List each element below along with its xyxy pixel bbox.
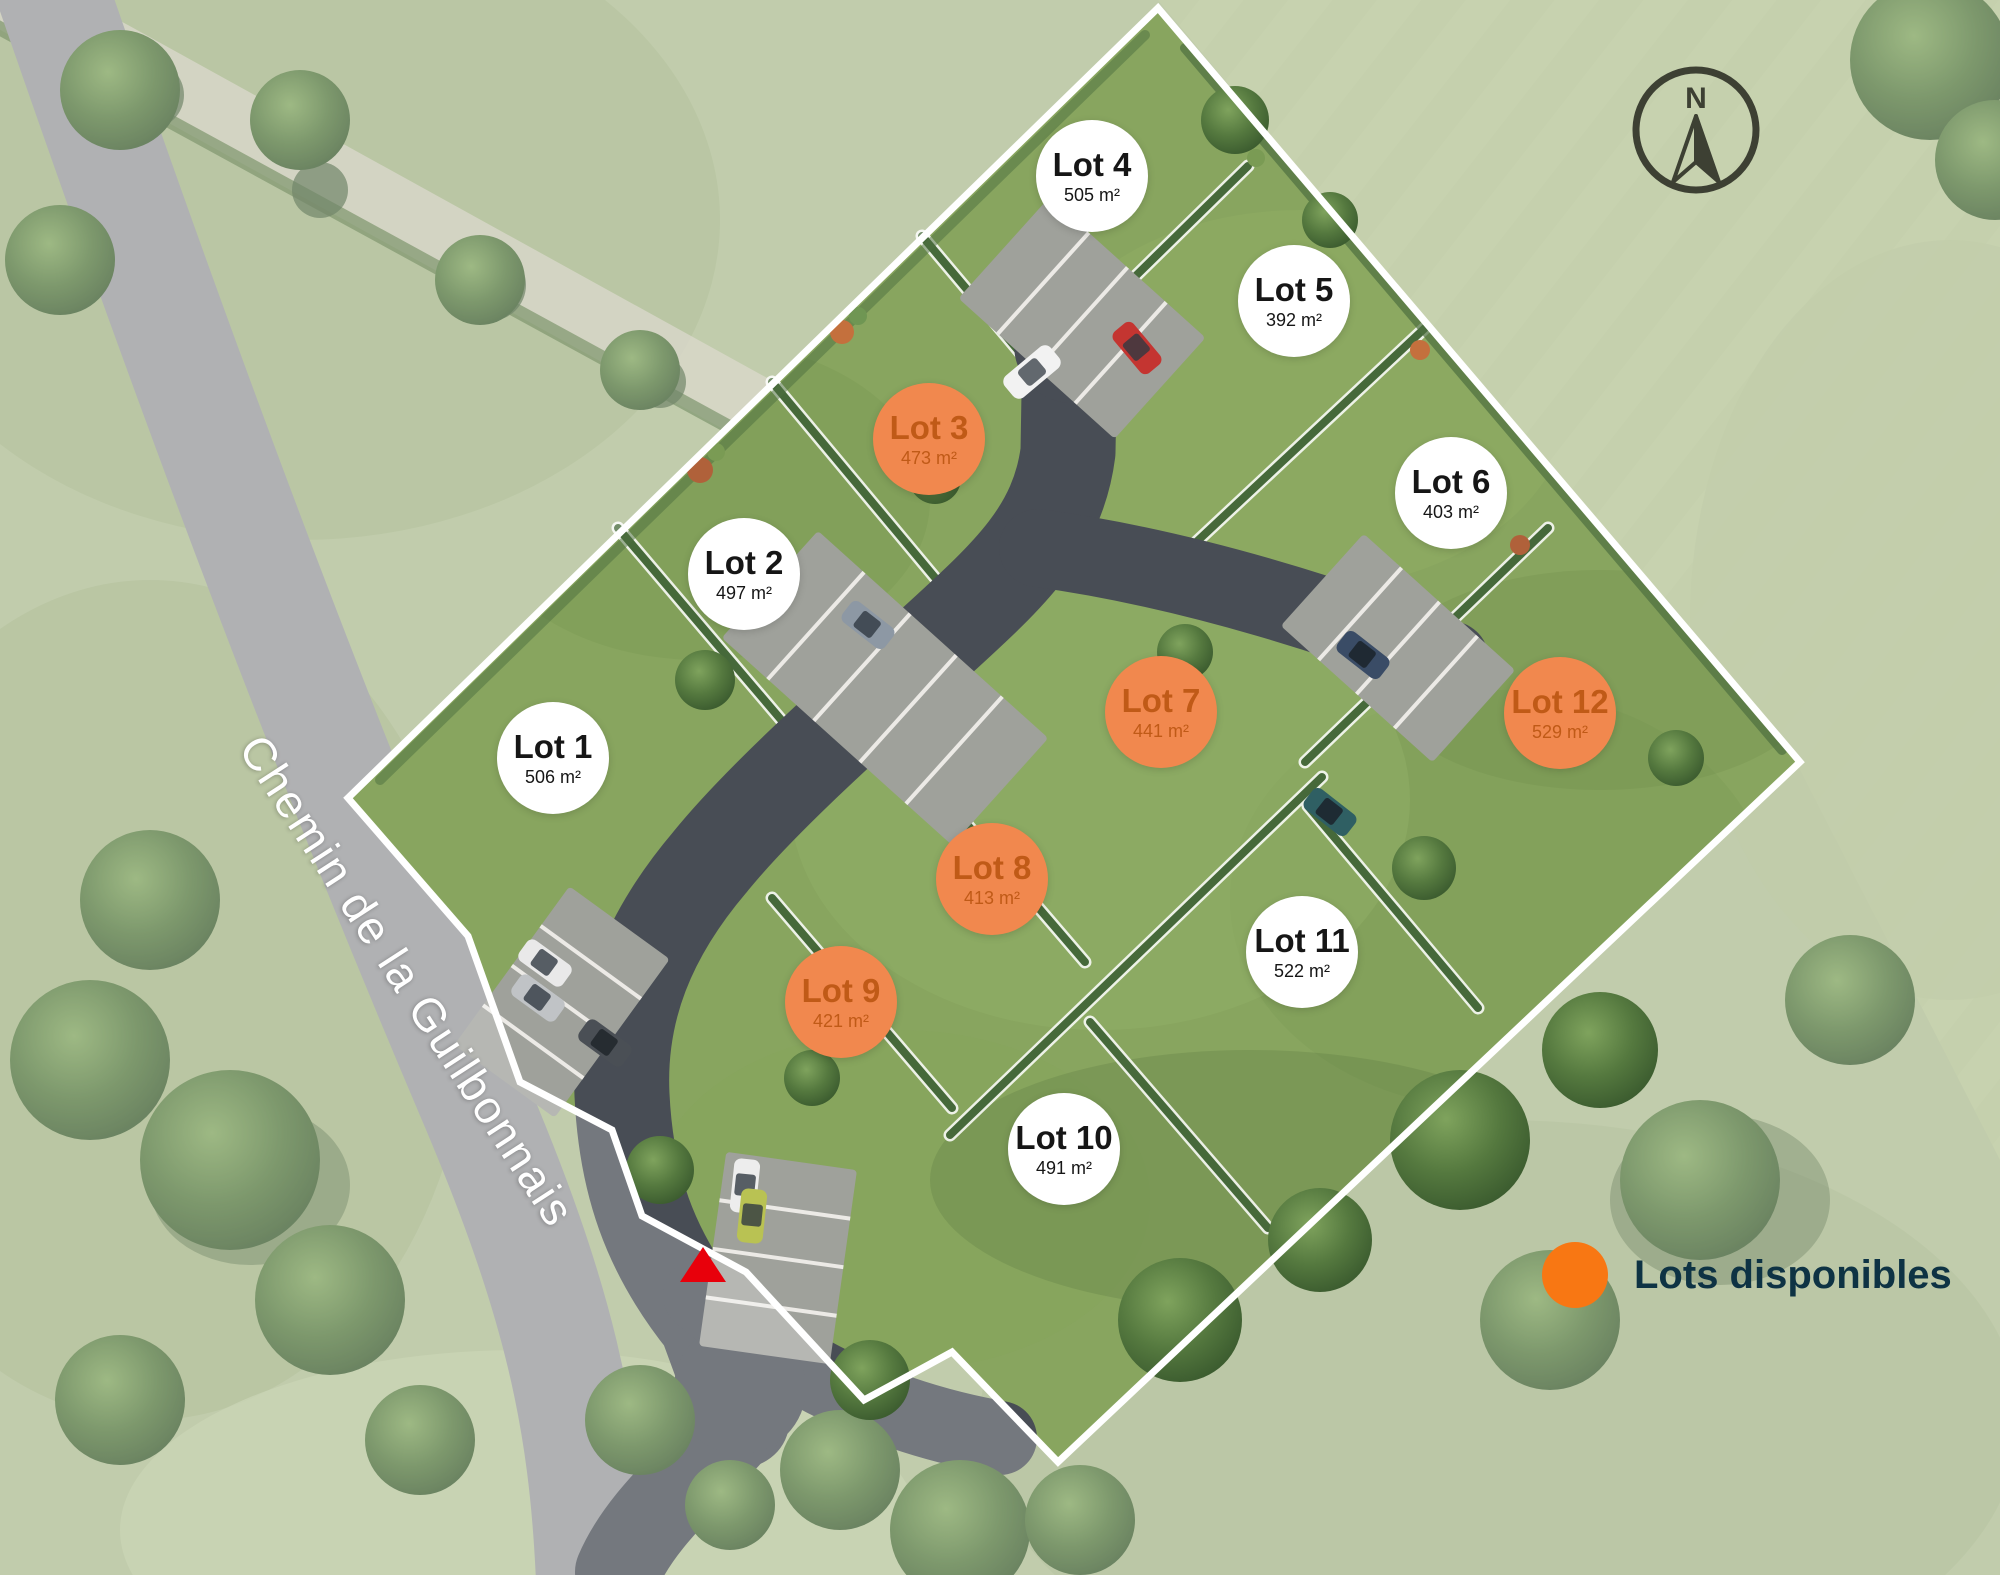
lot-label: Lot 4	[1053, 148, 1132, 181]
lot-area: 505 m²	[1064, 186, 1120, 204]
lot-label: Lot 9	[802, 974, 881, 1007]
lot-area: 441 m²	[1133, 722, 1189, 740]
entrance-marker-icon	[680, 1247, 726, 1282]
lot-label: Lot 3	[890, 411, 969, 444]
lot-area: 497 m²	[716, 584, 772, 602]
lot-badge-9[interactable]: Lot 9421 m²	[785, 946, 897, 1058]
lot-area: 421 m²	[813, 1012, 869, 1030]
lot-badge-2[interactable]: Lot 2497 m²	[688, 518, 800, 630]
lot-area: 522 m²	[1274, 962, 1330, 980]
lot-badge-8[interactable]: Lot 8413 m²	[936, 823, 1048, 935]
lot-badge-3[interactable]: Lot 3473 m²	[873, 383, 985, 495]
compass-icon: N	[1628, 62, 1764, 198]
lot-label: Lot 2	[705, 546, 784, 579]
lot-badge-6[interactable]: Lot 6403 m²	[1395, 437, 1507, 549]
lot-label: Lot 12	[1511, 685, 1608, 718]
lot-badge-4[interactable]: Lot 4505 m²	[1036, 120, 1148, 232]
lot-badge-5[interactable]: Lot 5392 m²	[1238, 245, 1350, 357]
compass-rose: N	[1628, 62, 1764, 198]
lot-area: 473 m²	[901, 449, 957, 467]
site-plan: Chemin de la Guilbonnais Lot 1506 m²Lot …	[0, 0, 2000, 1575]
lot-label: Lot 8	[953, 851, 1032, 884]
lot-badge-7[interactable]: Lot 7441 m²	[1105, 656, 1217, 768]
lot-badge-12[interactable]: Lot 12529 m²	[1504, 657, 1616, 769]
lot-label: Lot 10	[1015, 1121, 1112, 1154]
lot-label: Lot 7	[1122, 684, 1201, 717]
lot-area: 491 m²	[1036, 1159, 1092, 1177]
lot-label: Lot 1	[514, 730, 593, 763]
legend: Lots disponibles	[1542, 1242, 1952, 1308]
legend-label: Lots disponibles	[1634, 1253, 1952, 1298]
lot-label: Lot 6	[1412, 465, 1491, 498]
available-lot-swatch	[1542, 1242, 1608, 1308]
lot-badge-10[interactable]: Lot 10491 m²	[1008, 1093, 1120, 1205]
lot-area: 413 m²	[964, 889, 1020, 907]
compass-north-label: N	[1685, 82, 1707, 115]
lot-area: 403 m²	[1423, 503, 1479, 521]
lot-area: 392 m²	[1266, 311, 1322, 329]
lot-label: Lot 11	[1254, 924, 1349, 957]
lot-area: 529 m²	[1532, 723, 1588, 741]
lot-badge-11[interactable]: Lot 11522 m²	[1246, 896, 1358, 1008]
lot-label: Lot 5	[1255, 273, 1334, 306]
lot-badge-1[interactable]: Lot 1506 m²	[497, 702, 609, 814]
lot-area: 506 m²	[525, 768, 581, 786]
